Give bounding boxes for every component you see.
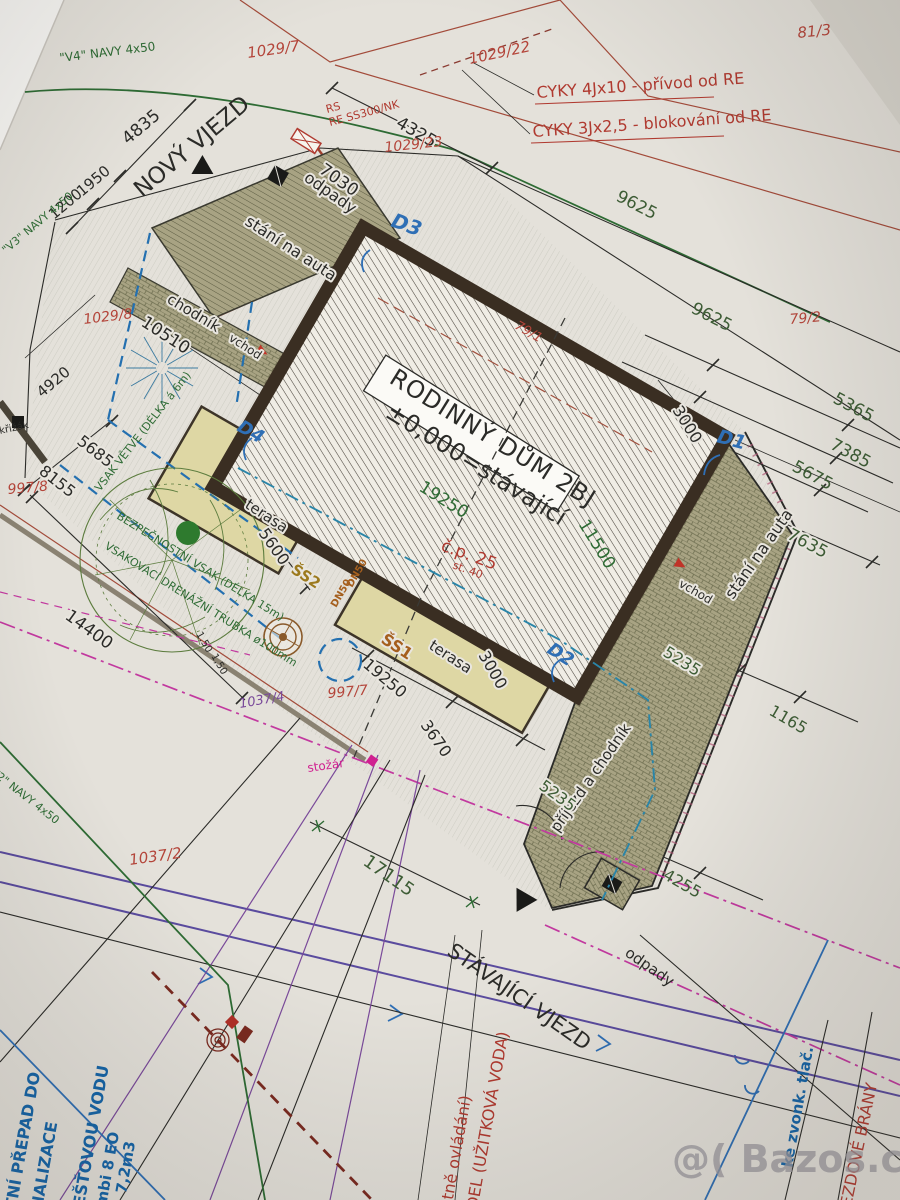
site-plan-photo: 81/3 1029/7 1029/22 CYKY 4Jx10 - přívod …: [0, 0, 900, 1200]
photo-vignette: [0, 0, 900, 1200]
site-plan-drawing: 81/3 1029/7 1029/22 CYKY 4Jx10 - přívod …: [0, 0, 900, 1200]
